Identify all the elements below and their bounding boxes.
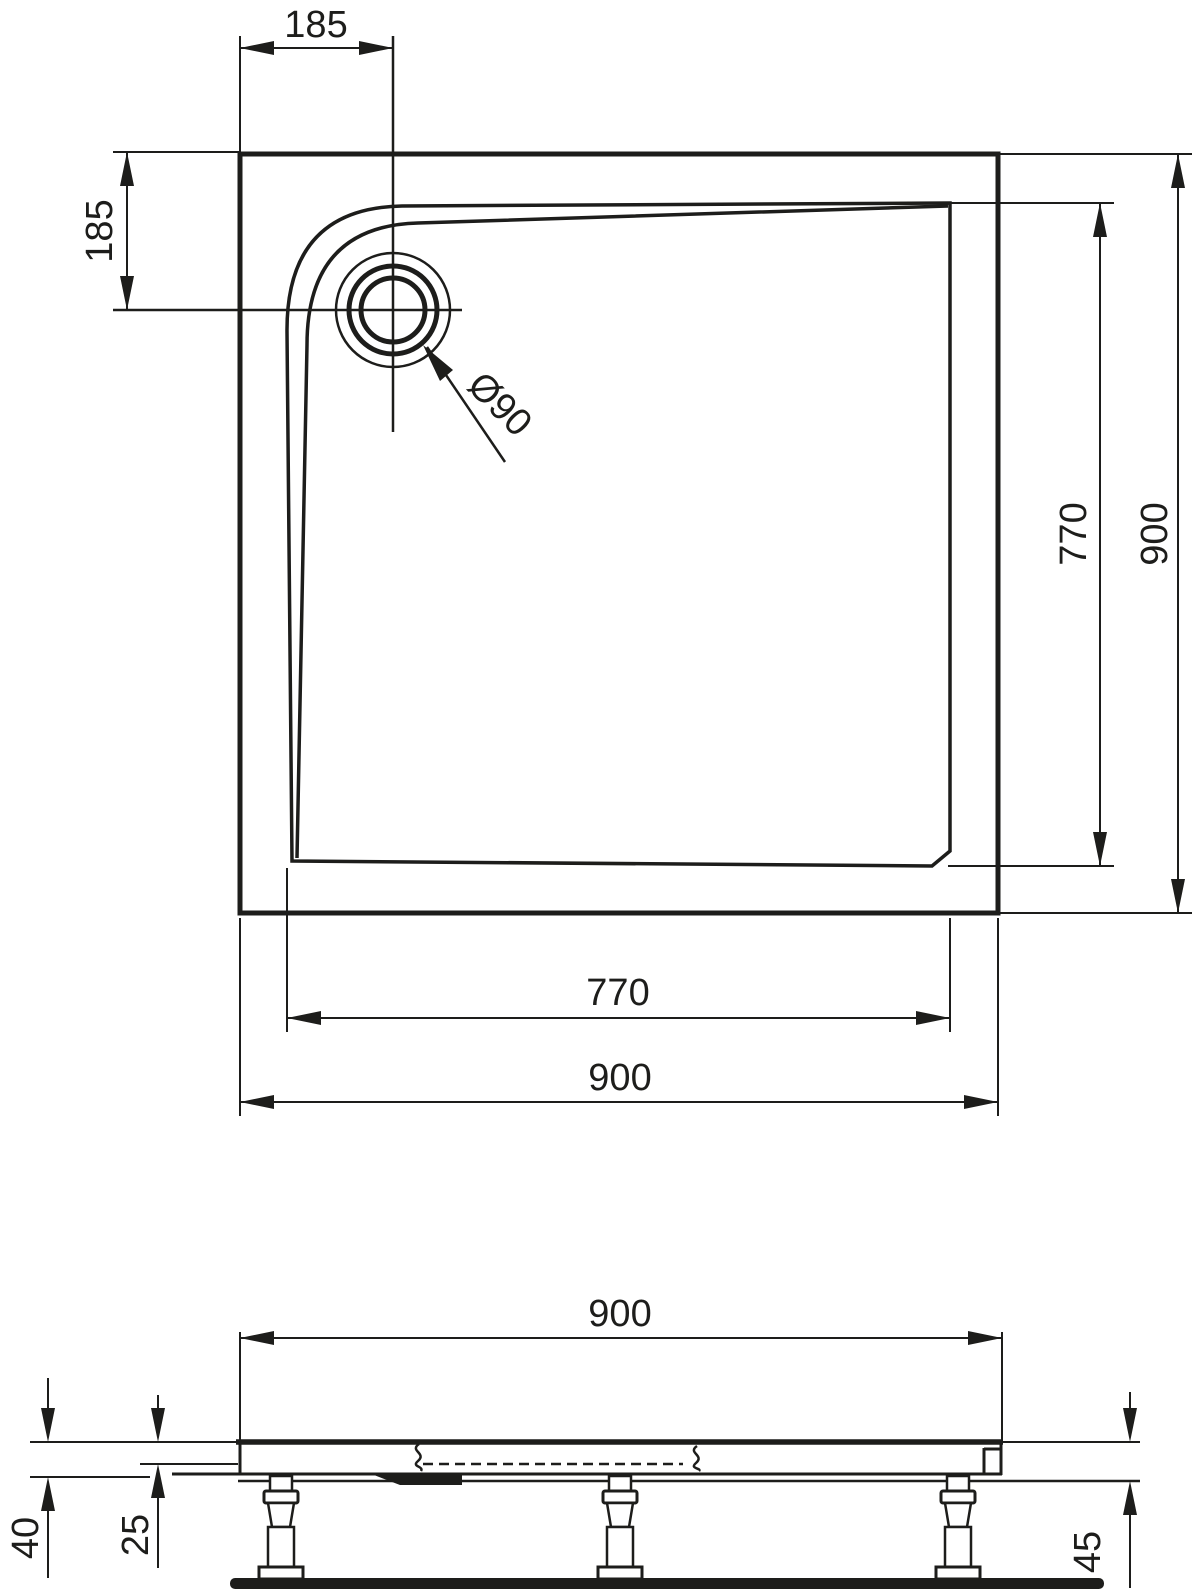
foot-taper bbox=[945, 1503, 971, 1527]
ground-line bbox=[230, 1578, 1104, 1589]
foot-column bbox=[945, 1527, 971, 1567]
dim-label-770-right: 770 bbox=[1053, 502, 1095, 565]
foot-base bbox=[936, 1567, 980, 1579]
foot-column bbox=[607, 1527, 633, 1567]
foot-base bbox=[598, 1567, 642, 1579]
dim-label-900-section: 900 bbox=[588, 1293, 651, 1335]
shower-tray-drawing: Ø90 185 185 770 900 bbox=[0, 0, 1200, 1590]
foot-taper bbox=[607, 1503, 633, 1527]
canvas-background bbox=[0, 0, 1200, 1590]
foot-base bbox=[259, 1567, 303, 1579]
foot-taper bbox=[268, 1503, 294, 1527]
foot-nut bbox=[941, 1491, 975, 1503]
foot-nut bbox=[264, 1491, 298, 1503]
dim-label-25: 25 bbox=[115, 1514, 157, 1556]
foot-column bbox=[268, 1527, 294, 1567]
dim-label-40: 40 bbox=[5, 1517, 47, 1559]
dim-label-900-right: 900 bbox=[1134, 502, 1176, 565]
dim-label-45: 45 bbox=[1067, 1531, 1109, 1573]
dim-label-185-top: 185 bbox=[284, 4, 347, 46]
foot-nut bbox=[603, 1491, 637, 1503]
drawing-page: Ø90 185 185 770 900 bbox=[0, 0, 1200, 1590]
dim-label-900-bottom: 900 bbox=[588, 1057, 651, 1099]
dim-label-185-left: 185 bbox=[79, 199, 121, 262]
dim-label-770-bottom: 770 bbox=[586, 972, 649, 1014]
